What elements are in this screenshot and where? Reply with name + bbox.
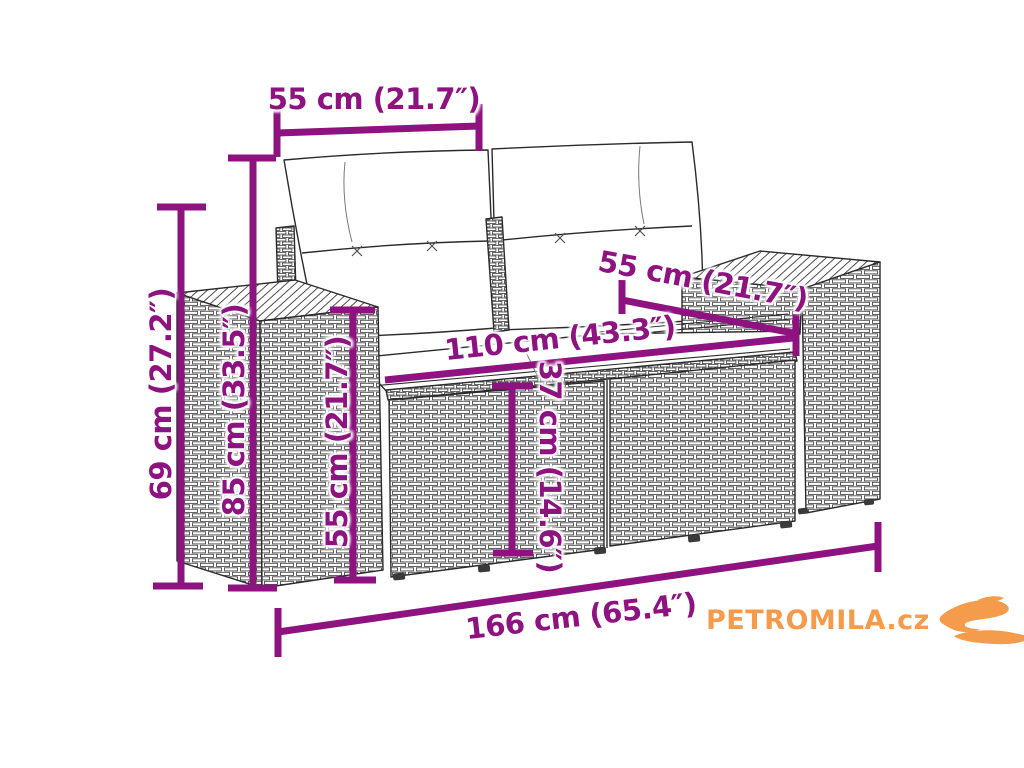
petromila-logo: PETROMILA.cz	[706, 598, 1024, 642]
base-front-panel-right	[610, 360, 795, 546]
dim-label-backrest-height: 55 cm (21.7″)	[320, 336, 354, 548]
dim-label-cushion-width: 55 cm (21.7″)	[268, 82, 480, 116]
dim-label-armrest-height: 69 cm (27.2″)	[144, 288, 178, 500]
logo-text: PETROMILA.cz	[706, 605, 930, 636]
swoosh-icon	[936, 594, 1024, 646]
base	[386, 352, 874, 581]
dimension-diagram: 55 cm (21.7″) 69 cm (27.2″) 85 cm (33.5″…	[0, 0, 1024, 768]
dim-label-seat-height: 37 cm (14.6″)	[533, 361, 567, 573]
dim-label-total-height: 85 cm (33.5″)	[217, 304, 251, 516]
base-front-panel-left	[389, 381, 604, 577]
back-cushion-right	[492, 142, 703, 330]
